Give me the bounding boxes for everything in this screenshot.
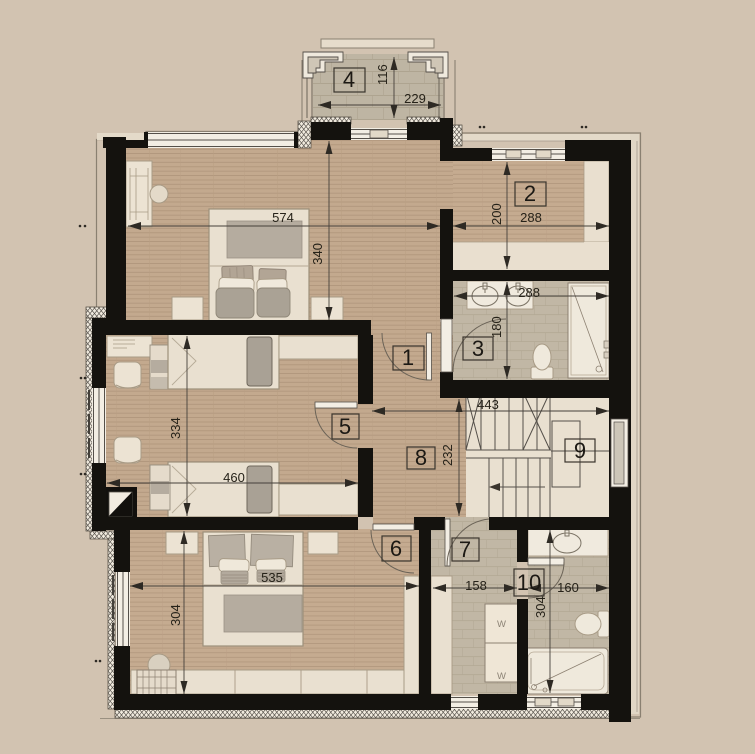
svg-text:160: 160 — [557, 580, 579, 595]
svg-text:574: 574 — [272, 210, 294, 225]
svg-text:229: 229 — [404, 91, 426, 106]
svg-text:7: 7 — [459, 537, 471, 562]
svg-text:535: 535 — [261, 570, 283, 585]
svg-text:5: 5 — [339, 414, 351, 439]
svg-text:232: 232 — [440, 444, 455, 466]
svg-text:304: 304 — [168, 604, 183, 626]
svg-text:334: 334 — [168, 417, 183, 439]
svg-text:2: 2 — [524, 181, 536, 206]
svg-text:6: 6 — [390, 536, 402, 561]
svg-text:10: 10 — [517, 570, 541, 595]
svg-text:1: 1 — [402, 345, 414, 370]
svg-text:460: 460 — [223, 470, 245, 485]
svg-text:116: 116 — [375, 64, 390, 85]
svg-text:158: 158 — [465, 578, 487, 593]
svg-text:W: W — [497, 671, 506, 682]
svg-text:304: 304 — [533, 596, 548, 618]
svg-text:8: 8 — [415, 445, 427, 470]
svg-text:288: 288 — [520, 210, 542, 225]
svg-text:180: 180 — [489, 316, 504, 338]
svg-text:W: W — [497, 619, 506, 630]
svg-text:9: 9 — [574, 438, 586, 463]
svg-text:3: 3 — [472, 336, 484, 361]
svg-text:288: 288 — [518, 285, 540, 300]
svg-text:443: 443 — [477, 397, 499, 412]
svg-text:340: 340 — [310, 243, 325, 265]
svg-text:200: 200 — [489, 203, 504, 225]
svg-text:4: 4 — [343, 67, 355, 92]
